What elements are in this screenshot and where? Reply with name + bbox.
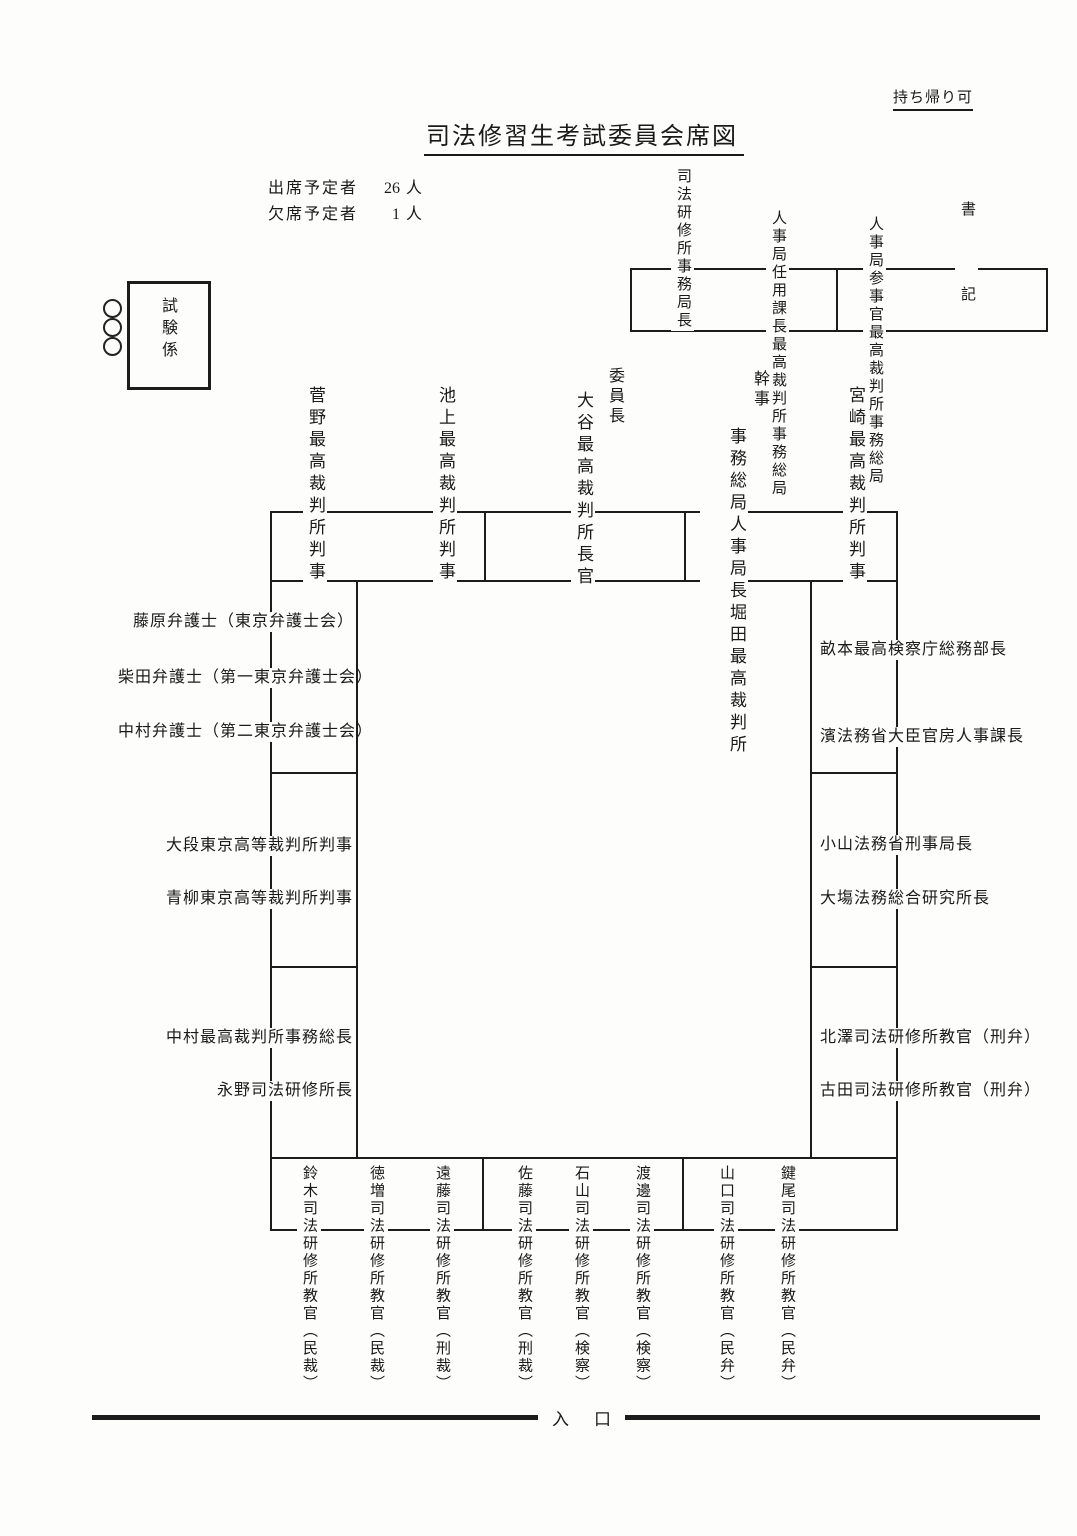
seat-top-hotta-line1: 堀田最高裁判所 <box>724 603 748 757</box>
page-title: 司法修習生考試委員会席図 <box>424 116 744 156</box>
table-inner-line-left <box>356 580 358 1159</box>
seat-bottom-yamaguchi: 山口司法研修所教官（民弁） <box>714 1163 738 1395</box>
seat-secretariat-sanjikan-line2: 人事局参事官 <box>863 216 886 324</box>
attendance-absent-value: 1 <box>358 202 400 228</box>
seat-right-unemoto: 畝本最高検察庁総務部長 <box>817 640 1010 660</box>
seat-bottom-endo: 遠藤司法研修所教官（刑裁） <box>430 1163 454 1395</box>
role-label-kanji: 幹事 <box>748 370 770 410</box>
right-band-divider-2 <box>810 966 898 968</box>
seat-left-fujiwara: 藤原弁護士（東京弁護士会） <box>130 612 356 632</box>
seat-left-nakamura-bengoshi: 中村弁護士（第二東京弁護士会） <box>115 722 356 742</box>
seat-left-nagano: 永野司法研修所長 <box>190 1081 356 1101</box>
attendance-expected-unit: 人 <box>406 176 424 202</box>
staff-circle-icon <box>103 299 122 318</box>
secretariat-desk-divider <box>836 268 838 332</box>
seat-top-otani: 大谷最高裁判所長官 <box>571 389 595 591</box>
role-label-iincho: 委員長 <box>603 367 625 427</box>
seat-bottom-kagio: 鍵尾司法研修所教官（民弁） <box>775 1163 799 1395</box>
seat-bottom-suzuki: 鈴木司法研修所教官（民裁） <box>297 1163 321 1395</box>
seat-right-kitazawa: 北澤司法研修所教官（刑弁） <box>817 1028 1044 1048</box>
seat-bottom-tokumasu: 徳増司法研修所教官（民裁） <box>364 1163 388 1395</box>
attendance-expected-label: 出席予定者 <box>268 176 358 202</box>
seat-right-hama: 濱法務省大臣官房人事課長 <box>817 727 1027 747</box>
entrance-label: 入 口 <box>552 1405 615 1430</box>
seat-top-ikegami: 池上最高裁判所判事 <box>433 384 457 586</box>
seat-left-nakamura-somucho: 中村最高裁判所事務総長 <box>140 1028 356 1048</box>
attendance-expected-value: 26 <box>358 176 400 202</box>
left-band-divider-2 <box>270 966 358 968</box>
staff-circle-icon <box>103 337 122 356</box>
seat-left-odan: 大段東京高等裁判所判事 <box>140 836 356 856</box>
seat-left-shibata: 柴田弁護士（第一東京弁護士会） <box>115 668 356 688</box>
attendance-expected-row: 出席予定者 26 人 <box>268 176 424 202</box>
seat-right-furuta: 古田司法研修所教官（刑弁） <box>817 1081 1044 1101</box>
seat-bottom-sato: 佐藤司法研修所教官（刑裁） <box>512 1163 536 1395</box>
seat-secretariat-ninyo-kacho-line1: 最高裁判所事務総局 <box>766 336 789 498</box>
seat-top-miyazaki: 宮崎最高裁判所判事 <box>843 384 867 586</box>
seat-top-kanno: 菅野最高裁判所判事 <box>303 384 327 586</box>
entrance-wall-left <box>92 1415 538 1420</box>
table-border-right <box>896 511 898 1231</box>
top-band-divider-2 <box>684 511 686 582</box>
seat-secretariat-shoki: 書 記 <box>955 200 978 305</box>
seat-right-koyama: 小山法務省刑事局長 <box>817 835 976 855</box>
bottom-band-divider-1 <box>482 1157 484 1231</box>
staff-circle-icon <box>103 318 122 337</box>
top-band-divider-1 <box>484 511 486 582</box>
seat-secretariat-jimukyokucho: 司法研修所事務局長 <box>671 167 694 331</box>
seat-secretariat-shoki-char2: 記 <box>959 286 975 304</box>
seat-secretariat-ninyo-kacho: 最高裁判所事務総局 人事局任用課長 <box>766 167 789 499</box>
seat-top-hotta: 堀田最高裁判所 事務総局人事局長 <box>700 388 748 759</box>
seat-secretariat-shoki-char1: 書 <box>959 201 975 219</box>
bottom-band-divider-2 <box>682 1157 684 1231</box>
seat-left-aoyagi: 青柳東京高等裁判所判事 <box>140 889 356 909</box>
attendance-absent-unit: 人 <box>406 202 424 228</box>
table-inner-line-bottom <box>270 1157 898 1159</box>
left-band-divider-1 <box>270 772 358 774</box>
entrance-wall-right <box>625 1415 1040 1420</box>
seat-bottom-watanabe: 渡邊司法研修所教官（検察） <box>630 1163 654 1395</box>
seat-bottom-ishiyama: 石山司法研修所教官（検察） <box>569 1163 593 1395</box>
table-inner-line-right <box>810 580 812 1159</box>
exam-staff-label: 試験係 <box>156 297 178 363</box>
attendance-absent-label: 欠席予定者 <box>268 202 358 228</box>
seat-top-hotta-line2: 事務総局人事局長 <box>724 427 748 603</box>
attendance-summary: 出席予定者 26 人 欠席予定者 1 人 <box>268 176 424 228</box>
seat-right-oba: 大塲法務総合研究所長 <box>817 889 993 909</box>
right-band-divider-1 <box>810 772 898 774</box>
take-home-note: 持ち帰り可 <box>893 86 973 111</box>
seat-secretariat-ninyo-kacho-line2: 人事局任用課長 <box>766 210 789 336</box>
attendance-absent-row: 欠席予定者 1 人 <box>268 202 424 228</box>
